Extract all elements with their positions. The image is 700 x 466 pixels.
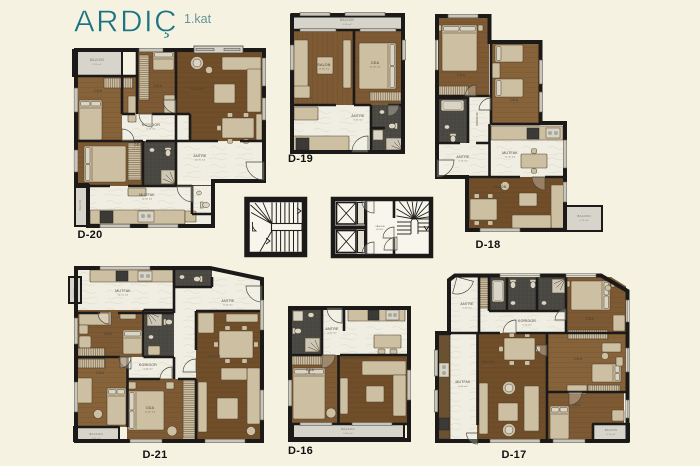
svg-text:17.60 m2: 17.60 m2 xyxy=(319,69,330,71)
svg-text:11.90 m2: 11.90 m2 xyxy=(370,67,381,69)
svg-text:BALKON: BALKON xyxy=(89,432,102,436)
svg-text:10.70 m2: 10.70 m2 xyxy=(195,160,206,162)
svg-text:9.10 m2: 9.10 m2 xyxy=(153,90,163,92)
svg-text:11.30 m2: 11.30 m2 xyxy=(305,374,316,376)
svg-text:BALKON: BALKON xyxy=(90,58,105,62)
svg-text:ODA: ODA xyxy=(134,143,143,147)
svg-text:12.80 m2: 12.80 m2 xyxy=(145,412,156,414)
svg-text:KORIDOR: KORIDOR xyxy=(518,319,536,323)
svg-text:D-18: D-18 xyxy=(475,239,500,251)
svg-text:ODA: ODA xyxy=(96,371,105,375)
svg-text:BALKON: BALKON xyxy=(605,428,618,432)
svg-text:SALON: SALON xyxy=(481,360,494,364)
svg-text:6.40 m2: 6.40 m2 xyxy=(342,24,352,26)
svg-text:KORIDOR: KORIDOR xyxy=(139,363,157,367)
svg-text:ODA: ODA xyxy=(94,89,103,93)
svg-text:BALKON: BALKON xyxy=(341,427,354,431)
svg-text:3.10 m2: 3.10 m2 xyxy=(606,434,616,436)
svg-text:12.10 m2: 12.10 m2 xyxy=(456,79,467,81)
svg-text:12.10 m2: 12.10 m2 xyxy=(118,295,129,297)
svg-text:D-20: D-20 xyxy=(77,229,102,241)
svg-text:4.10 m2: 4.10 m2 xyxy=(92,64,102,66)
svg-text:D-21: D-21 xyxy=(142,449,167,461)
svg-text:KORIDOR: KORIDOR xyxy=(475,112,479,126)
svg-text:ANTRE: ANTRE xyxy=(456,155,470,159)
svg-text:ODA: ODA xyxy=(104,332,113,336)
svg-text:MUTFAK: MUTFAK xyxy=(139,193,155,197)
svg-text:SALON: SALON xyxy=(493,185,506,189)
svg-text:3.10 m2: 3.10 m2 xyxy=(579,220,589,222)
svg-text:ANTRE: ANTRE xyxy=(460,302,474,306)
svg-text:ODA: ODA xyxy=(371,61,380,65)
svg-text:ARDIÇ: ARDIÇ xyxy=(74,4,178,39)
svg-text:6.10 m2: 6.10 m2 xyxy=(522,325,532,327)
svg-text:9.40 m2: 9.40 m2 xyxy=(571,409,581,411)
svg-text:YANGIN: YANGIN xyxy=(375,225,385,228)
svg-text:SALON+MUTFAK: SALON+MUTFAK xyxy=(342,356,370,360)
svg-text:ODA: ODA xyxy=(306,368,315,372)
svg-text:ANTRE: ANTRE xyxy=(221,299,235,303)
svg-text:ODA: ODA xyxy=(586,317,595,321)
svg-text:12.60 m2: 12.60 m2 xyxy=(142,199,153,201)
svg-text:9.80 m2: 9.80 m2 xyxy=(343,433,353,435)
svg-text:24.30 m2: 24.30 m2 xyxy=(192,93,203,95)
svg-text:10.60 m2: 10.60 m2 xyxy=(509,104,520,106)
svg-text:ANTRE: ANTRE xyxy=(193,154,207,158)
svg-text:ODA: ODA xyxy=(154,84,163,88)
svg-text:10.90 m2: 10.90 m2 xyxy=(103,338,114,340)
svg-text:26.30 m2: 26.30 m2 xyxy=(351,362,362,364)
svg-text:4.10 m2: 4.10 m2 xyxy=(146,129,156,131)
svg-text:26.10 m2: 26.10 m2 xyxy=(209,360,220,362)
svg-text:24.70 m2: 24.70 m2 xyxy=(483,366,494,368)
svg-text:SALON: SALON xyxy=(317,63,330,67)
svg-text:4.20 m2: 4.20 m2 xyxy=(327,333,337,335)
svg-text:5.10 m2: 5.10 m2 xyxy=(458,161,468,163)
svg-text:21.90 m2: 21.90 m2 xyxy=(495,191,506,193)
svg-text:ANTRE: ANTRE xyxy=(351,114,365,118)
svg-text:8.20 m2: 8.20 m2 xyxy=(223,305,233,307)
svg-text:10.10 m2: 10.10 m2 xyxy=(573,363,584,365)
svg-text:ODA: ODA xyxy=(574,357,583,361)
svg-text:MUTFAK: MUTFAK xyxy=(502,151,518,155)
svg-text:12.40 m2: 12.40 m2 xyxy=(585,323,596,325)
svg-text:BALKON: BALKON xyxy=(577,214,590,218)
svg-text:ODA: ODA xyxy=(146,406,155,410)
svg-text:8.60 m2: 8.60 m2 xyxy=(458,386,468,388)
svg-text:D-19: D-19 xyxy=(288,153,313,165)
svg-text:11.70 m2: 11.70 m2 xyxy=(93,95,104,97)
svg-text:SALON: SALON xyxy=(190,87,203,91)
svg-text:BALKON: BALKON xyxy=(79,199,82,210)
svg-text:D-16: D-16 xyxy=(288,445,313,457)
svg-text:1.kat: 1.kat xyxy=(184,12,212,26)
svg-text:9.80 m2: 9.80 m2 xyxy=(95,377,105,379)
svg-text:9.20 m2: 9.20 m2 xyxy=(353,120,363,122)
svg-text:D-17: D-17 xyxy=(501,449,526,461)
svg-text:ODA: ODA xyxy=(510,98,519,102)
svg-text:ANTRE: ANTRE xyxy=(325,327,339,331)
svg-text:4.40 m2: 4.40 m2 xyxy=(143,369,153,371)
svg-text:5.40 m2: 5.40 m2 xyxy=(462,308,472,310)
svg-text:SALON: SALON xyxy=(207,354,220,358)
svg-text:MUTFAK: MUTFAK xyxy=(115,289,131,293)
svg-text:ODA: ODA xyxy=(457,73,466,77)
svg-text:HOLU: HOLU xyxy=(377,229,384,231)
svg-text:BALKON: BALKON xyxy=(340,18,355,22)
svg-text:MUTFAK: MUTFAK xyxy=(456,380,471,384)
svg-text:12.40 m2: 12.40 m2 xyxy=(505,157,516,159)
